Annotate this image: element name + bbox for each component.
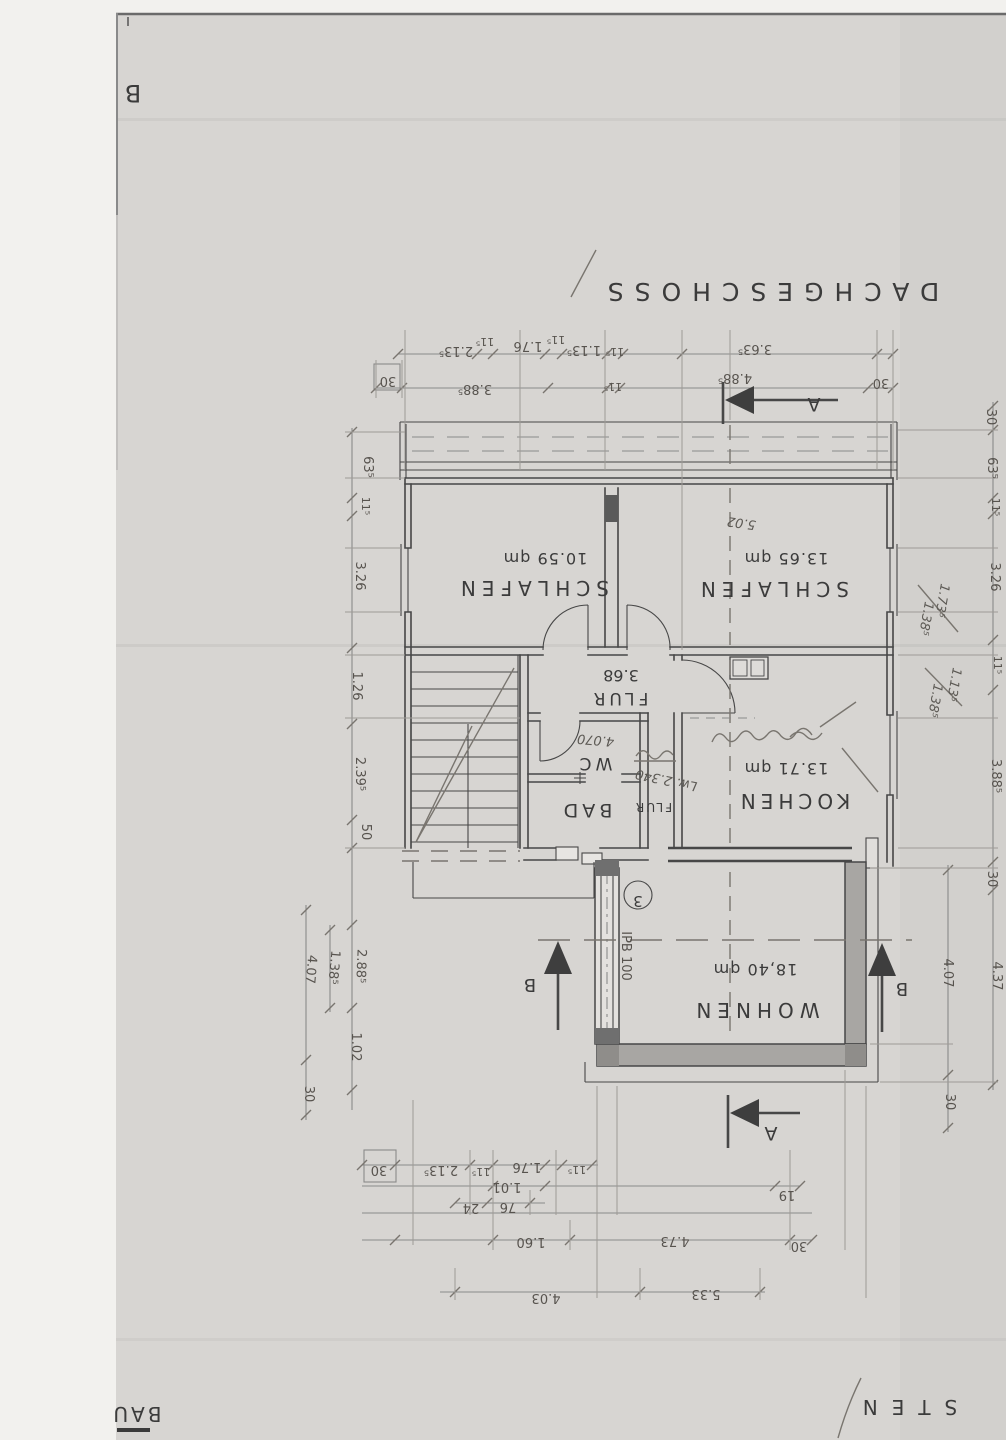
room-label-schlafen-left: SCHLAFEN [455, 576, 609, 600]
room-area-wohnen: 18,40 qm [713, 960, 798, 979]
dim-top-outer-2: 11⁵ [604, 380, 622, 393]
dim-top-inner-6: 3.63⁵ [738, 341, 772, 356]
dim-top-inner-4: 1.13⁵ [567, 342, 601, 357]
dim-right-lower-2: 30 [942, 1094, 957, 1111]
room-area-schlafen-left: 10.59 qm [503, 549, 588, 568]
dim-right-lower-0: 4.37 [989, 962, 1004, 991]
dim-bottom-r3-2: 30 [791, 1238, 808, 1253]
corner-letter: B [125, 79, 141, 107]
dim-top-inner-5: 11⁵ [606, 345, 624, 358]
dim-right-upper-1: 63⁵ [984, 457, 999, 479]
section-letter-a-bottom: A [765, 1122, 778, 1144]
dim-left-upper-5: 50 [358, 824, 373, 841]
room-label-kochen: KOCHEN [736, 789, 850, 813]
dim-left-upper-0: 63⁵ [360, 456, 375, 478]
dim-left-lower-1: 1.38⁵ [325, 950, 343, 985]
room-label-flur-small: FLUR [634, 800, 672, 814]
detail-circle-number: 3 [633, 892, 643, 910]
room-label-wohnen: WOHNEN [690, 998, 819, 1022]
chimney-block [605, 495, 618, 522]
room-label-bad: BAD [560, 799, 613, 821]
section-letter-b-left: B [524, 974, 536, 995]
plan-title: DACHGESCHOSS [597, 277, 939, 306]
dim-left-upper-3: 1.26 [349, 672, 364, 701]
beam-label: IPB 100 [618, 931, 633, 981]
dim-right-upper-5: 3.88⁵ [988, 759, 1003, 793]
room-area-schlafen-right: 13.65 qm [744, 549, 829, 568]
room-label-wc: WC [576, 753, 613, 773]
kitchen-sink [730, 657, 768, 679]
dim-right-upper-3: 3.26 [987, 563, 1002, 592]
section-letter-b-right: B [896, 978, 908, 999]
dim-bottom-r1-3: 1.76 [513, 1159, 542, 1174]
room-area-kochen: 13.71 qm [744, 759, 829, 778]
scanned-floor-plan-page: DACHGESCHOSS B BAU STEN SCHLAFEN 10.59 q… [0, 0, 1006, 1440]
dim-bottom-r2-0: 1.01 [493, 1179, 522, 1194]
dim-top-outer-0: 30 [380, 373, 397, 388]
dim-top-outer-3: 4.88⁵ [718, 370, 752, 385]
dim-left-upper-2: 3.26 [352, 562, 367, 591]
dim-left-upper-4: 2.39⁵ [352, 757, 367, 791]
section-letter-a-top: A [808, 393, 821, 415]
dim-top-outer-4: 30 [873, 375, 890, 390]
dim-right-upper-6: 30 [984, 871, 999, 888]
dim-right-upper-0: 30 [983, 409, 998, 426]
dim-left-upper-1: 11⁵ [359, 497, 372, 515]
room-label-schlafen-right: SCHLAFEN [695, 577, 849, 601]
footer-stamp-right: STEN [849, 1395, 958, 1419]
dim-left-lower-2: 4.07 [302, 954, 319, 984]
dim-bottom-r3-1: 4.73 [661, 1233, 690, 1248]
room-area-flur: 3.68 [603, 666, 639, 685]
dim-top-inner-1: 11⁵ [476, 335, 494, 348]
dim-left-lower-0: 2.88⁵ [352, 949, 368, 984]
footer-stamp-left: BAU [110, 1402, 161, 1426]
dim-bottom-r2-2: 76 [500, 1199, 517, 1214]
dim-bottom-r3-0: 1.60 [517, 1234, 546, 1249]
dim-bottom-r1-4: 11⁵ [568, 1163, 586, 1176]
dim-top-inner-0: 2.13⁵ [439, 343, 473, 358]
dim-top-inner-2: 1.76 [514, 338, 543, 353]
dim-top-outer-1: 3.88⁵ [458, 381, 492, 396]
dim-bottom-r1-2: 11⁵ [472, 1165, 490, 1178]
dim-left-lower-4: 30 [301, 1086, 316, 1103]
dim-bottom-r1-0: 30 [371, 1162, 388, 1177]
dim-bottom-r1-1: 2.13⁵ [424, 1162, 458, 1177]
dim-left-lower-3: 1.02 [348, 1033, 363, 1062]
dim-right-upper-2: 11⁵ [989, 498, 1002, 516]
dim-top-inner-3: 11⁵ [547, 333, 565, 346]
dim-bottom-r4-1: 5.33 [692, 1286, 721, 1301]
dim-bottom-r4-0: 4.03 [532, 1290, 561, 1305]
room-label-flur: FLUR [590, 688, 649, 708]
scan-paper-background [0, 0, 1006, 1440]
dim-right-lower-1: 4.07 [940, 959, 955, 988]
dim-bottom-r2-3: 19 [779, 1187, 796, 1202]
dim-bottom-r2-1: 24 [463, 1200, 480, 1215]
dim-right-upper-4: 11⁵ [991, 656, 1004, 674]
